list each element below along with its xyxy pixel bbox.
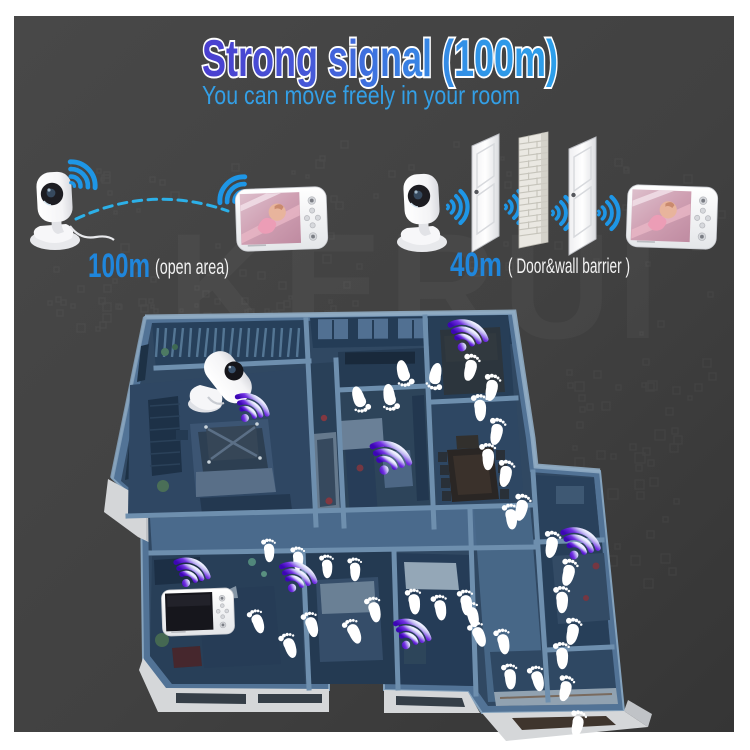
svg-text:100m: 100m: [88, 247, 150, 285]
svg-text:(open area): (open area): [155, 256, 229, 279]
svg-text:40m: 40m: [450, 246, 502, 284]
svg-text:( Door&wall barrier ): ( Door&wall barrier ): [508, 255, 630, 278]
svg-text:You can move freely in your ro: You can move freely in your room: [202, 80, 520, 110]
